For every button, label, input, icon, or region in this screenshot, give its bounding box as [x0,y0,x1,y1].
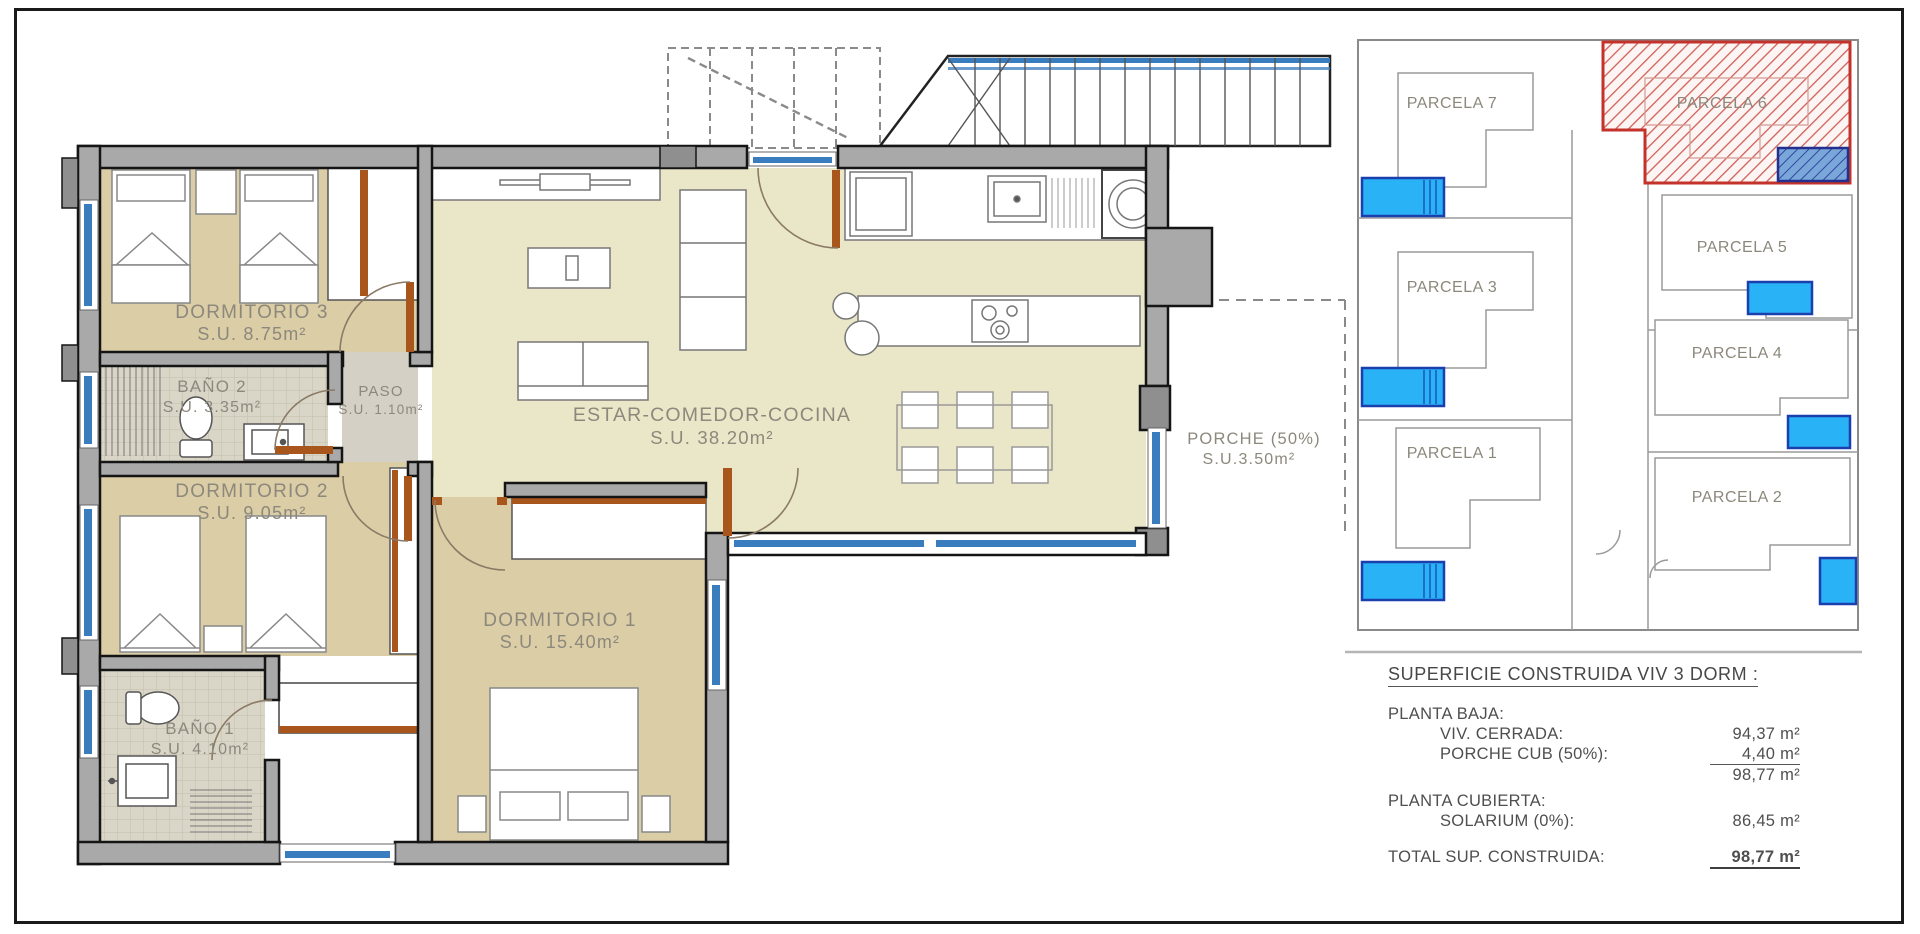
porche-cub-label: PORCHE CUB (50%): [1388,744,1608,765]
total-value: 98,77 m² [1710,847,1800,869]
label-parcela7: PARCELA 7 [1407,95,1497,112]
pool-icon [1362,178,1444,216]
pool-icon [1788,416,1850,448]
pool-icon [1362,562,1444,600]
label-porche-area: S.U.3.50m² [1203,451,1296,468]
label-parcela6: PARCELA 6 [1677,95,1767,112]
closet-icon [279,683,429,733]
label-dormitorio1-area: S.U. 15.40m² [500,632,620,652]
window-icon [708,580,726,690]
label-dormitorio2-area: S.U. 9.05m² [197,503,306,523]
viv-cerrada-label: VIV. CERRADA: [1388,724,1563,744]
window-icon [1148,428,1166,528]
planta-baja-subtotal-label [1388,765,1440,785]
wardrobe-icon [328,166,418,300]
window-icon [80,372,98,448]
stairs-icon [668,48,1330,148]
label-bano1-name: BAÑO 1 [165,719,235,738]
nightstand-icon [196,170,236,214]
stool-icon [845,321,879,355]
surface-summary: SUPERFICIE CONSTRUIDA VIV 3 DORM : PLANT… [1388,664,1858,869]
porch-outline [1168,300,1345,533]
nightstand-icon [458,796,486,832]
label-estar-area: S.U. 38.20m² [650,427,773,448]
glazed-wall [728,533,1146,555]
label-dormitorio3-area: S.U. 8.75m² [197,324,306,344]
porche-cub-value: 4,40 m² [1710,744,1800,765]
label-parcela5: PARCELA 5 [1697,239,1787,256]
label-bano2-name: BAÑO 2 [177,377,247,396]
label-paso-area: S.U. 1.10m² [338,402,423,417]
floor-plan: DORMITORIO 3 S.U. 8.75m² BAÑO 2 S.U. 3.3… [62,48,1345,864]
window-icon [80,505,98,640]
window-icon [80,200,98,310]
site-plan: PARCELA 7 PARCELA 6 PARCELA 5 PARCELA 3 … [1345,40,1862,652]
viv-cerrada-value: 94,37 m² [1710,724,1800,744]
planta-baja-heading: PLANTA BAJA: [1388,704,1858,724]
pool-icon [1778,148,1848,181]
label-porche-name: PORCHE (50%) [1187,430,1321,448]
planta-baja-subtotal-value: 98,77 m² [1710,765,1800,785]
label-bano2-area: S.U. 3.35m² [163,399,262,416]
stool-icon [833,293,859,319]
nightstand-icon [642,796,670,832]
bed-icon [120,516,200,652]
label-paso-name: PASO [358,383,403,400]
wardrobe-icon [512,497,706,559]
pool-icon [1820,558,1856,604]
label-dormitorio2-name: DORMITORIO 2 [175,481,328,502]
label-parcela3: PARCELA 3 [1407,279,1497,296]
pool-icon [1362,368,1444,406]
label-parcela4: PARCELA 4 [1692,345,1782,362]
window-icon [80,686,98,758]
solarium-value: 86,45 m² [1710,811,1800,831]
summary-title: SUPERFICIE CONSTRUIDA VIV 3 DORM : [1388,664,1758,687]
bed-icon [246,516,326,652]
label-dormitorio1-name: DORMITORIO 1 [483,610,636,631]
nightstand-icon [204,626,242,652]
pool-icon [1748,282,1812,314]
label-bano1-area: S.U. 4.10m² [151,741,250,758]
label-dormitorio3-name: DORMITORIO 3 [175,302,328,323]
entry-door-glass-icon [749,152,836,166]
planta-cubierta-heading: PLANTA CUBIERTA: [1388,791,1858,811]
label-parcela2: PARCELA 2 [1692,489,1782,506]
label-parcela1: PARCELA 1 [1407,445,1497,462]
total-label: TOTAL SUP. CONSTRUIDA: [1388,847,1605,869]
shelf-icon [680,190,746,350]
dormitorio3-furniture [112,166,418,303]
label-estar-name: ESTAR-COMEDOR-COCINA [573,404,851,426]
solarium-label: SOLARIUM (0%): [1388,811,1574,831]
window-icon [280,844,395,862]
